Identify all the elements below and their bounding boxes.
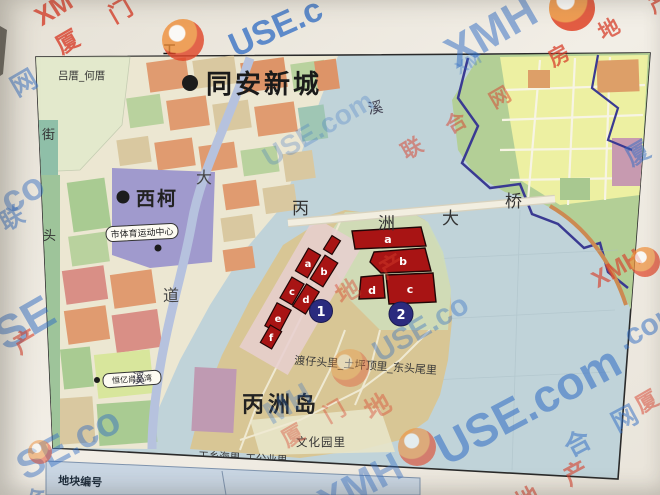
parcel-2c-label: c [407,283,414,296]
parcel-1f-label: f [269,333,274,344]
parcel-2d-label: d [368,284,376,297]
island-label: 丙洲岛 [242,392,320,418]
parcel-1b-label: b [320,267,327,278]
xike-dot [117,191,130,204]
parcel-1c-label: c [289,287,295,298]
group-1-number: 1 [316,305,325,320]
tongan-city-label: 同安新城 [206,69,322,100]
lucuo-label: 吕厝_何厝 [58,69,105,82]
bridge-char-1: 丙 [292,199,309,219]
group-2-number: 2 [396,308,405,323]
parcel-1d-label: d [302,295,309,306]
jie-label: 街 [42,128,55,143]
creek-label-top: 溪 [367,98,385,118]
parcel-2a-label: a [384,233,391,246]
map-drawing: a b c d e f a b c d 1 2 市体育运动中心 恒亿尚品湾 [0,0,660,495]
island-mauve-block [191,367,236,433]
xike-label: 西柯 [136,188,178,210]
bridge-char-2: 洲 [378,214,395,234]
photographed-planning-map-page: a b c d e f a b c d 1 2 市体育运动中心 恒亿尚品湾 [0,0,660,495]
tou-label: 头 [43,229,56,244]
bridge-char-4: 桥 [505,192,522,212]
table-header-parcel-id: 地块编号 [58,473,103,489]
sports-center-callout: 市体育运动中心 [106,223,179,242]
parcel-2b-label: b [399,255,407,268]
parcel-1e-label: e [275,314,282,325]
culture-park-label: 文化园里 [296,435,346,449]
tongan-city-dot [182,75,198,91]
dao-label: 道 [163,286,179,305]
parcel-1a-label: a [305,259,312,270]
da-label: 大 [196,168,212,187]
survey-mark: 工 [163,43,176,58]
bridge-char-3: 大 [442,209,459,229]
city-block [560,178,590,200]
hengyi-dot [94,377,100,383]
city-block [596,59,639,92]
creek-label-bottom: 溪 [132,372,145,387]
city-block [528,70,550,88]
sports-center-dot [155,245,162,252]
city-block [612,138,642,186]
